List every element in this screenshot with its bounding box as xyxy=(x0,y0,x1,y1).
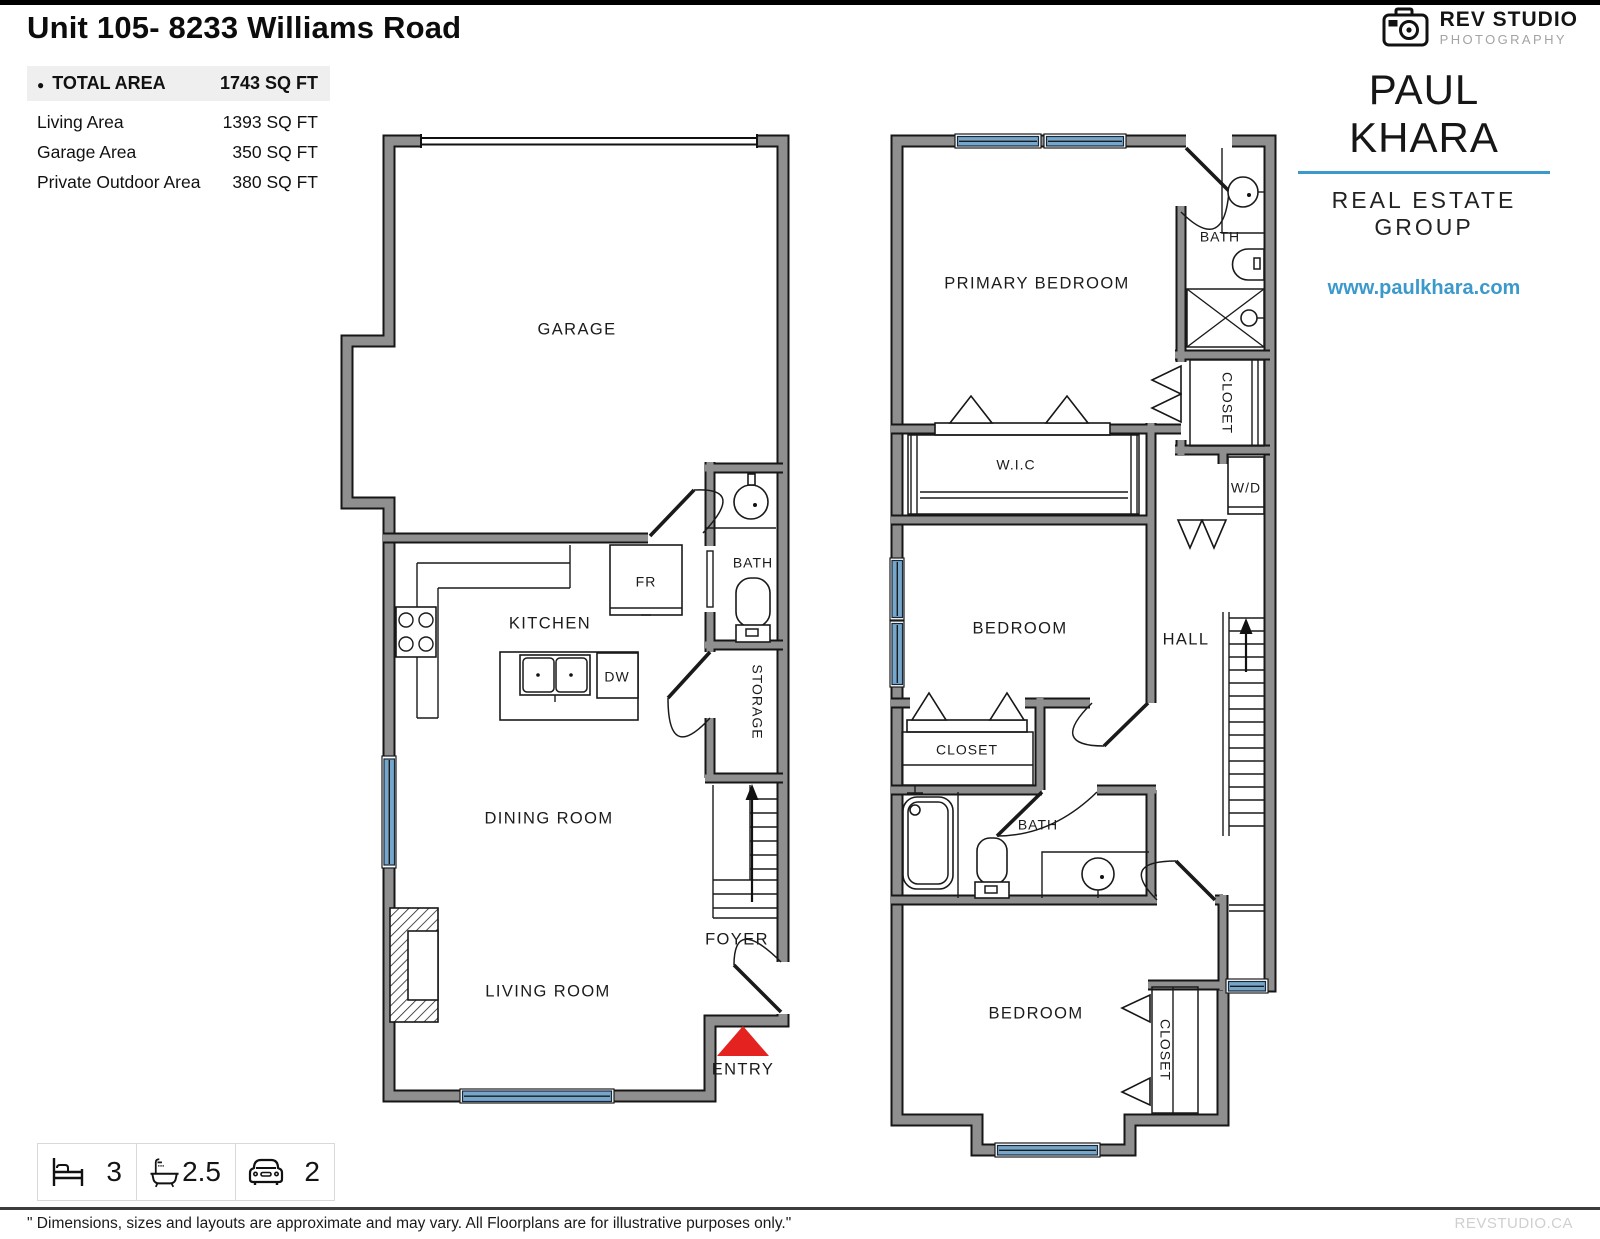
fixture-label-washer-dryer: W/D xyxy=(1231,480,1261,496)
room-label-dining: DINING ROOM xyxy=(484,809,613,827)
room-label-bedroom-mid: BEDROOM xyxy=(972,619,1067,637)
floorplan-flyer: Unit 105- 8233 Williams Road REV STUDIO … xyxy=(0,0,1600,1239)
stairs xyxy=(713,784,777,918)
entry-arrow-icon xyxy=(717,1026,769,1056)
upper-bath-fixtures xyxy=(1187,148,1265,347)
room-label-foyer: FOYER xyxy=(705,930,769,948)
footer-divider xyxy=(0,1207,1600,1210)
room-label-bath: BATH xyxy=(733,555,773,571)
stat-bedrooms: 3 xyxy=(37,1143,137,1201)
lower-bath-fixtures xyxy=(903,786,1149,898)
stairs xyxy=(1223,612,1264,911)
stairs-up-arrow xyxy=(746,784,759,800)
mid-closet xyxy=(902,693,1033,785)
floorplan-upper-level: PRIMARY BEDROOM BATH CLOSET W/D W.I.C BE… xyxy=(890,134,1270,1157)
fireplace xyxy=(390,908,438,1022)
stairs-up-arrow xyxy=(1240,618,1253,634)
floorplan-main-level: GARAGE KITCHEN FR DW BATH STORAGE DINING… xyxy=(347,134,783,1103)
walk-in-closet xyxy=(908,396,1139,514)
fixture-label-fridge: FR xyxy=(636,574,657,590)
room-label-entry: ENTRY xyxy=(712,1060,775,1078)
room-label-living: LIVING ROOM xyxy=(485,982,610,1000)
floorplans: GARAGE KITCHEN FR DW BATH STORAGE DINING… xyxy=(0,0,1600,1239)
room-label-bedroom-lower: BEDROOM xyxy=(988,1004,1083,1022)
pocket-door xyxy=(703,546,717,612)
bed-icon xyxy=(48,1154,88,1190)
room-label-wic: W.I.C xyxy=(996,457,1035,473)
car-icon xyxy=(246,1154,286,1190)
room-label-closet-mid: CLOSET xyxy=(936,742,998,758)
room-label-garage: GARAGE xyxy=(537,320,616,338)
room-label-hall: HALL xyxy=(1163,630,1210,648)
fixture-label-dishwasher: DW xyxy=(604,669,629,685)
kitchen-fixtures xyxy=(396,545,682,720)
room-label-closet-lower: CLOSET xyxy=(1157,1019,1173,1081)
footer-brand: REVSTUDIO.CA xyxy=(1454,1215,1573,1232)
disclaimer-text: " Dimensions, sizes and layouts are appr… xyxy=(27,1215,791,1233)
stat-bathrooms-value: 2.5 xyxy=(182,1156,221,1188)
garage-door xyxy=(420,134,758,148)
washer-dryer xyxy=(1178,457,1264,548)
bathtub-icon xyxy=(147,1154,182,1190)
property-stats-bar: 3 2.5 2 xyxy=(37,1143,335,1201)
room-label-primary-bedroom: PRIMARY BEDROOM xyxy=(944,274,1129,292)
room-label-storage: STORAGE xyxy=(749,664,765,739)
stat-bathrooms: 2.5 xyxy=(136,1143,236,1201)
room-label-bath-lower: BATH xyxy=(1018,817,1058,833)
room-label-kitchen: KITCHEN xyxy=(509,614,591,632)
room-label-bath-upper: BATH xyxy=(1200,229,1240,245)
stat-parking-value: 2 xyxy=(304,1156,320,1188)
room-label-closet-upper: CLOSET xyxy=(1219,372,1235,434)
stat-bedrooms-value: 3 xyxy=(106,1156,122,1188)
stat-parking: 2 xyxy=(235,1143,335,1201)
